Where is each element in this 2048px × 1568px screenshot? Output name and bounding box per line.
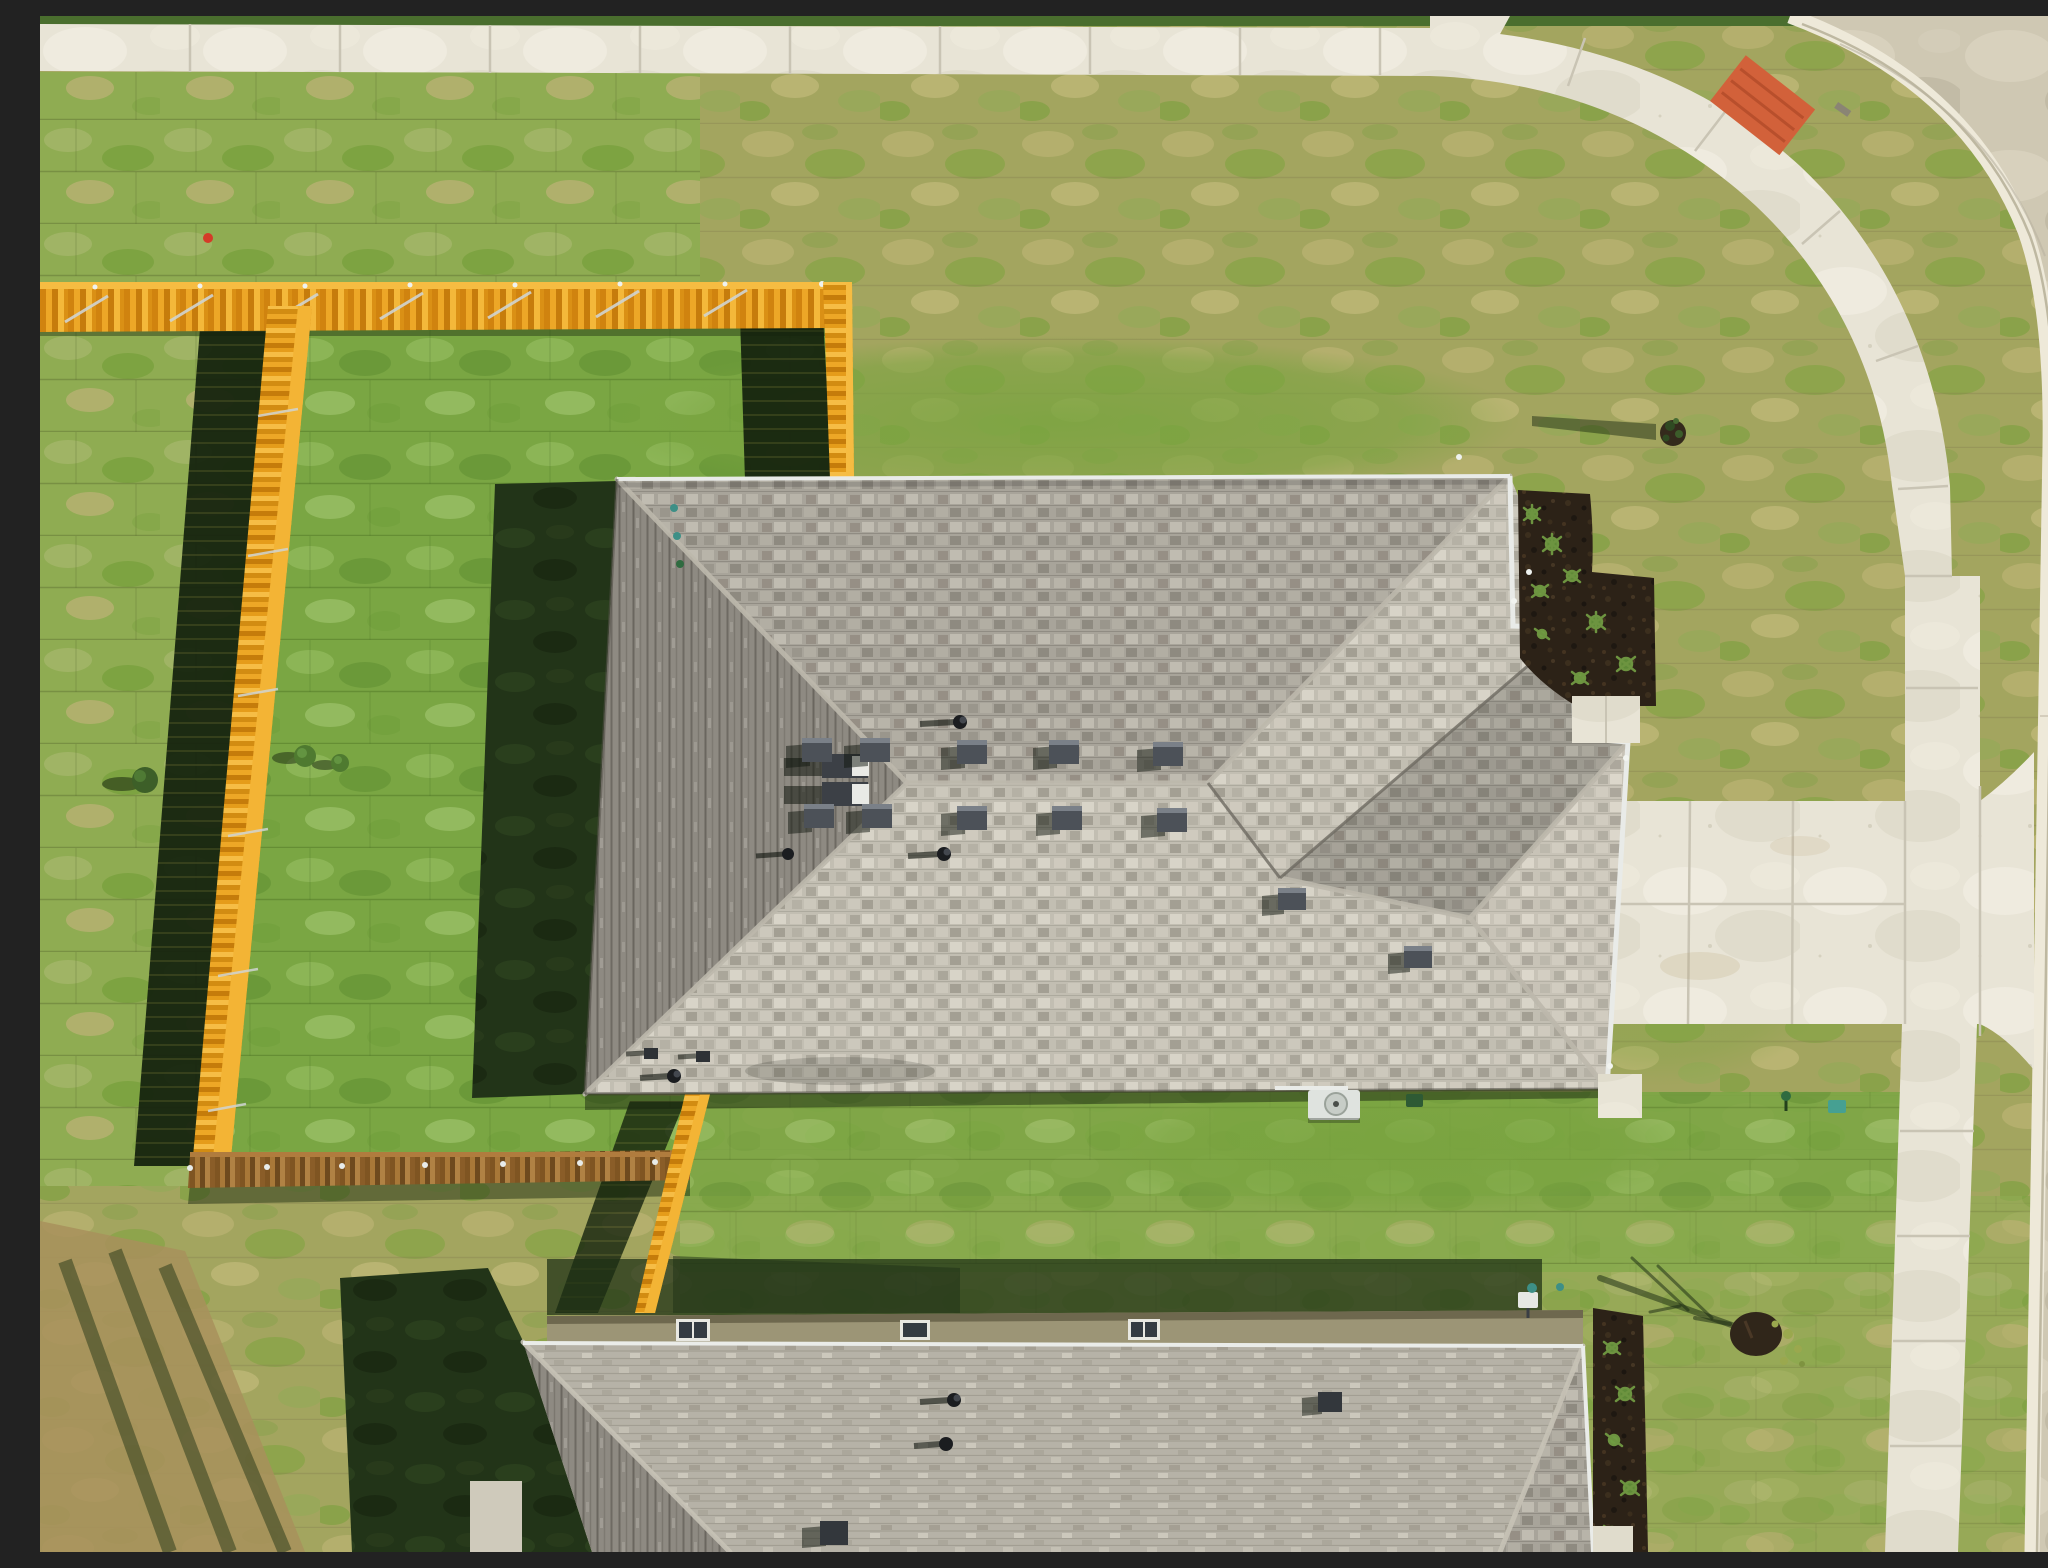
- north-fence-run: [40, 282, 832, 332]
- south-fence-toprail: [190, 1152, 690, 1157]
- northwest-sod-lawn: [40, 72, 700, 292]
- north-fence-toprail: [40, 282, 830, 289]
- electric-meter: [1518, 1292, 1538, 1308]
- roof-stain: [745, 1057, 935, 1085]
- garage-corner-pad: [1598, 1074, 1642, 1118]
- aerial-photo: Overhead nadir view: large gray hip-roof…: [40, 16, 2048, 1552]
- bottom-left-pad: [470, 1481, 522, 1552]
- north-eave-shade: [617, 482, 1510, 485]
- red-marker-flag: [203, 233, 213, 243]
- teal-marker-1: [1527, 1283, 1537, 1293]
- driveway-stain-2: [1770, 836, 1830, 856]
- green-utility-box: [1406, 1094, 1423, 1107]
- second-house-walkway: [1593, 1526, 1633, 1552]
- teal-marker-2: [1556, 1283, 1564, 1291]
- driveway-stain: [1660, 952, 1740, 980]
- bed-sprinkler: [1526, 569, 1532, 575]
- ac-condenser: [1308, 1090, 1360, 1123]
- vent-white-cap-2: [852, 784, 869, 804]
- far-grass-strip: [40, 16, 2048, 26]
- front-tree-mulch: [1730, 1312, 1782, 1356]
- second-house-mulch-bed: [1593, 1308, 1648, 1552]
- main-house-roof: [585, 476, 1629, 1094]
- aerial-photo-svg: [40, 16, 2048, 1552]
- fence-east-leg-shadow: [740, 316, 832, 481]
- top-sidewalk: [40, 24, 1430, 76]
